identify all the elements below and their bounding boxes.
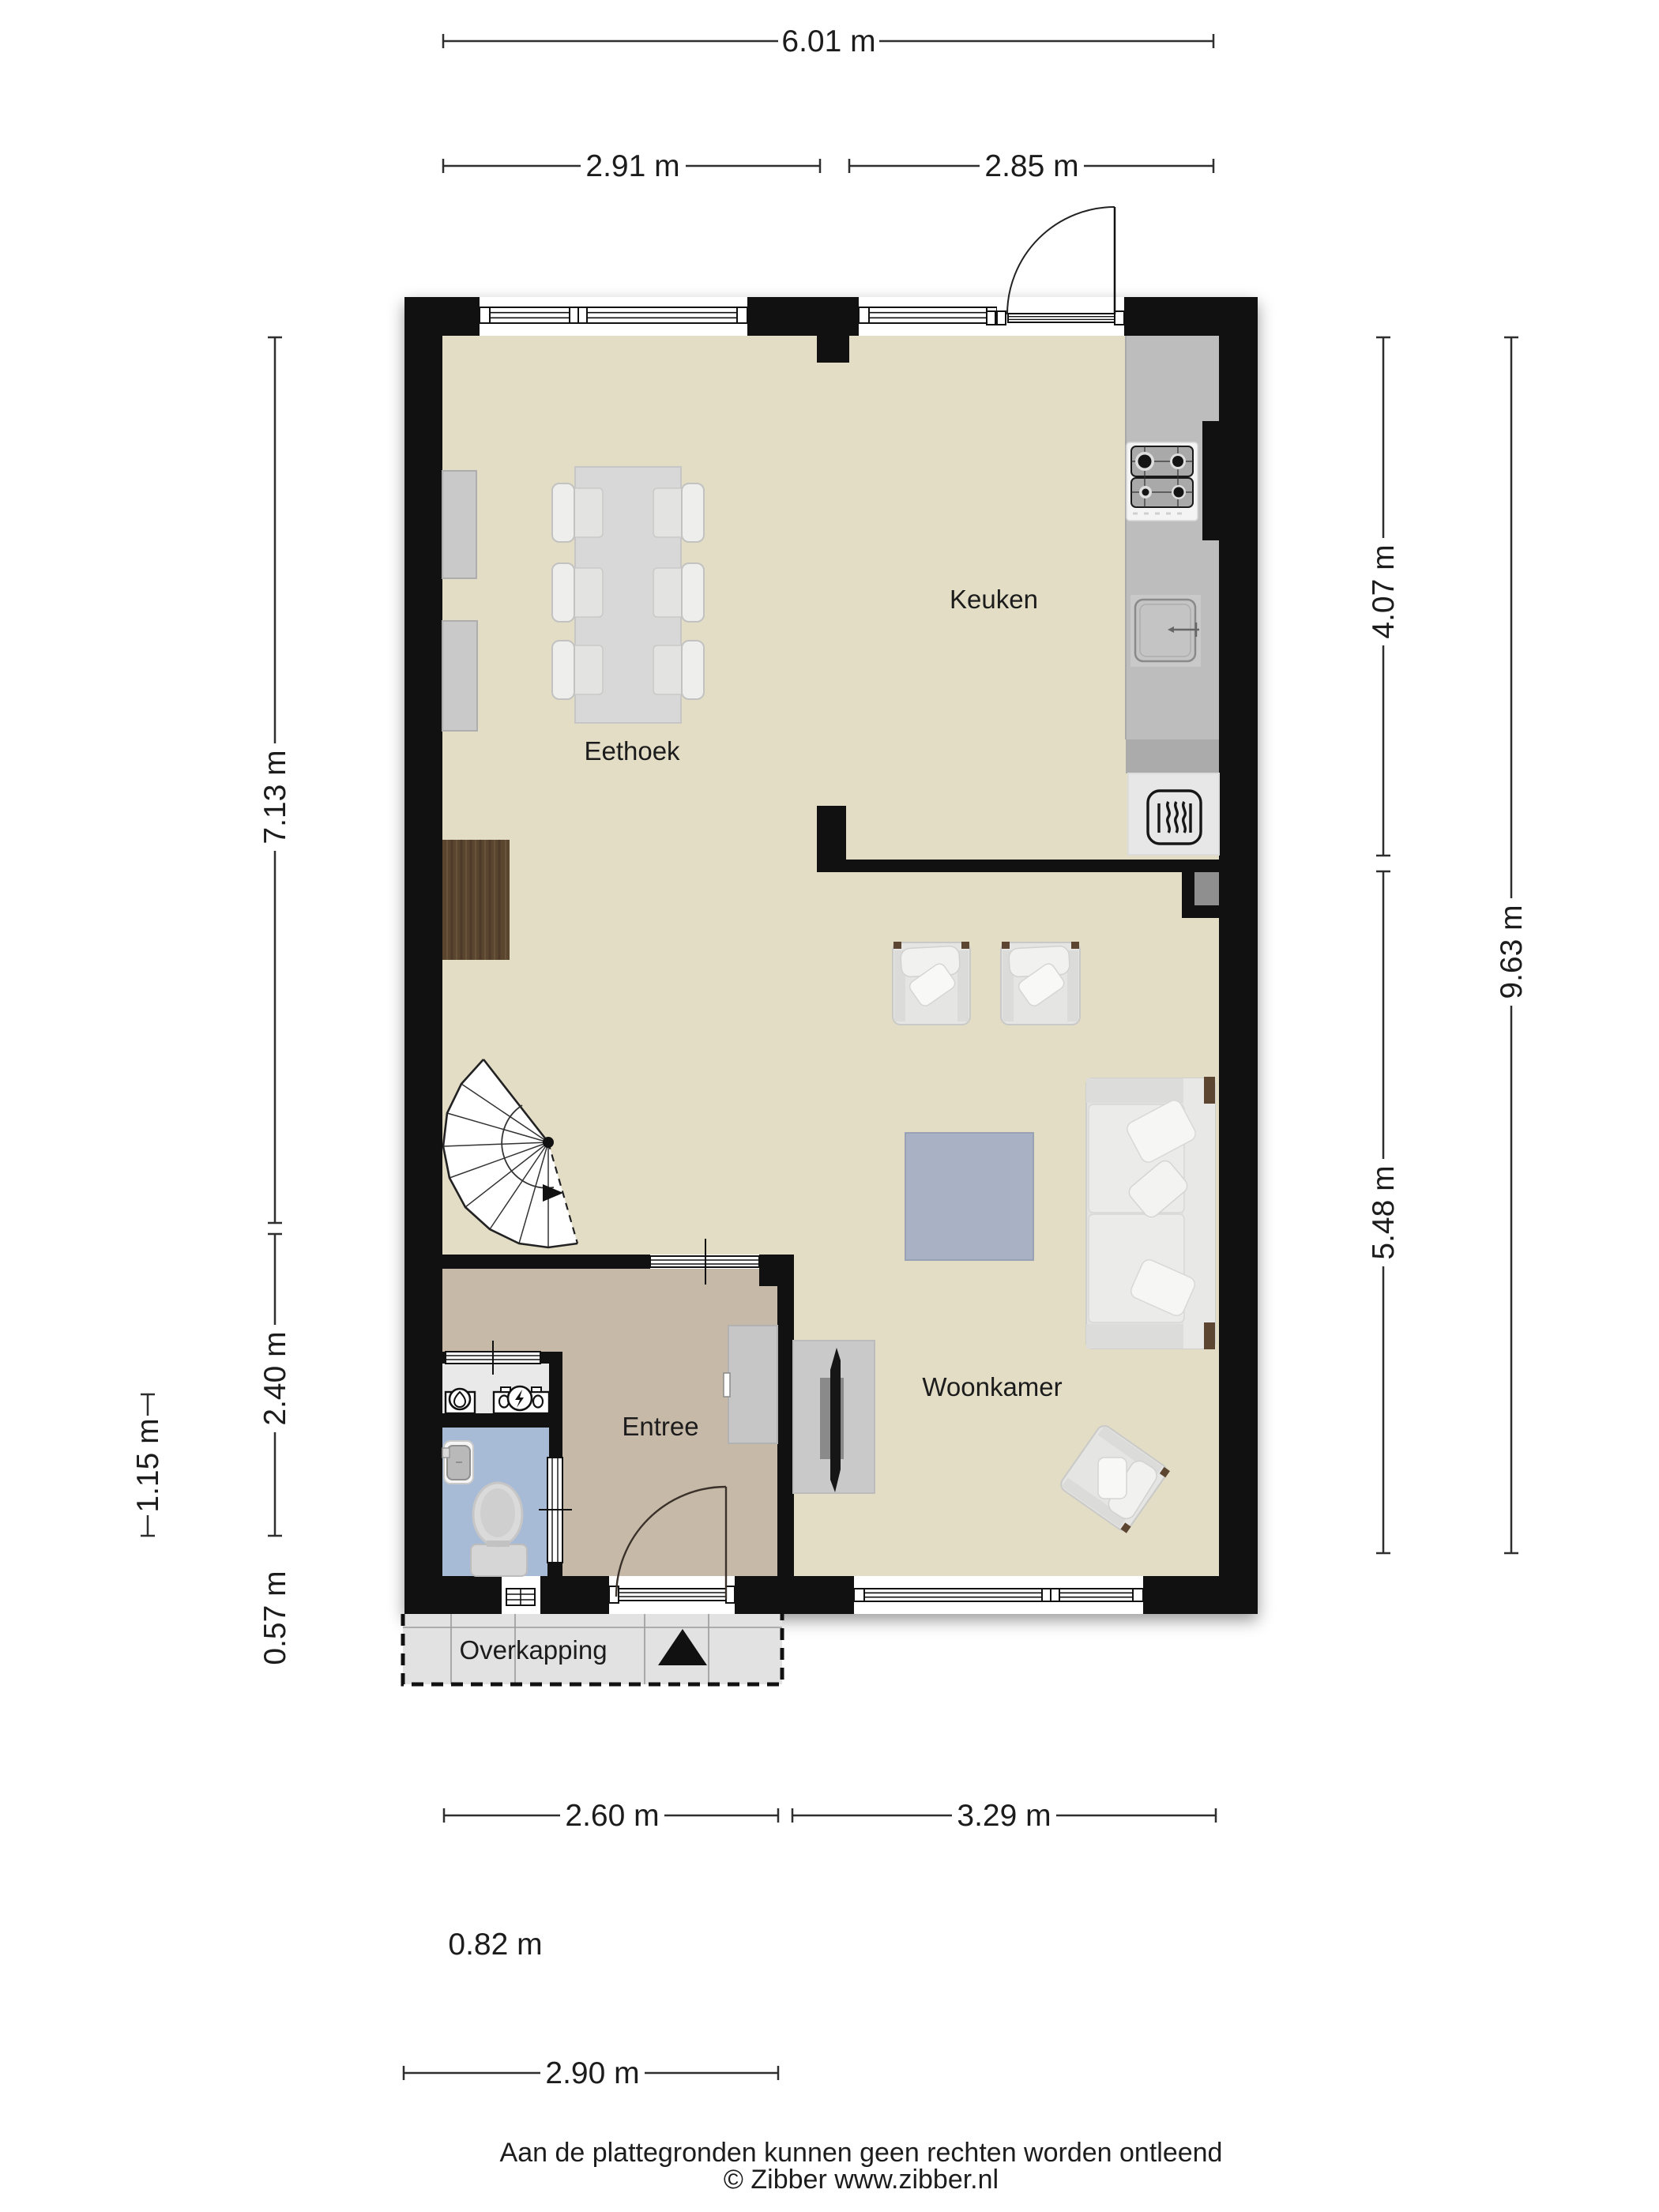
svg-text:0.57 m: 0.57 m: [258, 1571, 292, 1665]
svg-text:5.48 m: 5.48 m: [1367, 1165, 1401, 1259]
svg-text:2.90 m: 2.90 m: [545, 2056, 639, 2090]
svg-text:9.63 m: 9.63 m: [1495, 905, 1529, 999]
svg-text:Aan de plattegronden kunnen ge: Aan de plattegronden kunnen geen rechten…: [500, 2138, 1223, 2168]
svg-text:3.29 m: 3.29 m: [957, 1799, 1051, 1833]
svg-text:Keuken: Keuken: [950, 585, 1038, 614]
svg-text:0.82 m: 0.82 m: [448, 1928, 542, 1962]
svg-text:1.15 m: 1.15 m: [131, 1418, 165, 1512]
svg-text:2.40 m: 2.40 m: [258, 1331, 292, 1425]
svg-text:Entree: Entree: [622, 1412, 698, 1441]
svg-text:6.01 m: 6.01 m: [781, 24, 875, 58]
svg-text:Woonkamer: Woonkamer: [922, 1372, 1062, 1401]
svg-text:4.07 m: 4.07 m: [1367, 544, 1401, 638]
svg-text:2.91 m: 2.91 m: [585, 149, 679, 183]
svg-text:2.85 m: 2.85 m: [984, 149, 1078, 183]
svg-text:7.13 m: 7.13 m: [258, 750, 292, 844]
svg-text:Overkapping: Overkapping: [459, 1635, 607, 1665]
svg-text:Eethoek: Eethoek: [584, 736, 680, 766]
svg-text:2.60 m: 2.60 m: [565, 1799, 659, 1833]
svg-text:© Zibber www.zibber.nl: © Zibber www.zibber.nl: [724, 2165, 999, 2195]
